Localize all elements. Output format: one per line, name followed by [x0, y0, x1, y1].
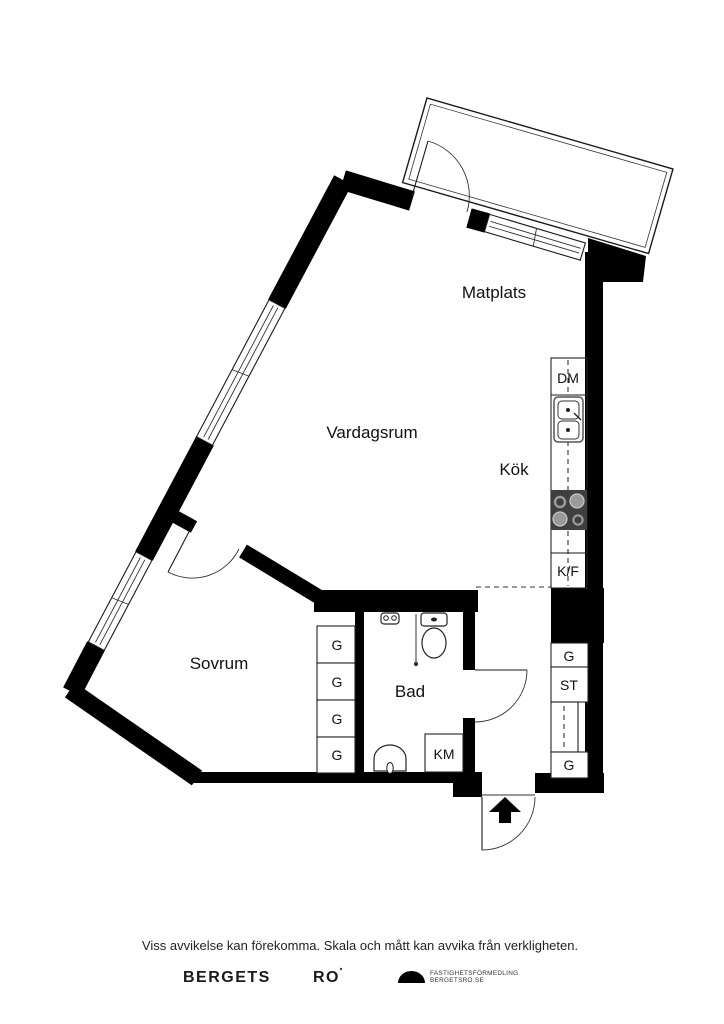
bedroom-door-jamb: [174, 516, 194, 527]
shower-line: [414, 614, 418, 666]
brand-word-ro: RO: [313, 969, 340, 986]
burner-bottom-left: [553, 512, 567, 526]
label-wardrobe-1: G: [332, 637, 343, 653]
kitchen-sink: [554, 397, 583, 442]
left-wall-mid-segment: [144, 441, 205, 556]
round-basin: [374, 745, 406, 774]
kitchen-counter: [476, 358, 587, 588]
burner-bottom-right: [573, 515, 582, 524]
floorplan-page: Matplats Vardagsrum Kök Sovrum Bad DM K/…: [0, 0, 724, 1024]
burner-top-left: [555, 497, 565, 507]
interior-walls: [174, 516, 604, 774]
halfcircle-logo-icon: [398, 971, 425, 983]
left-wall-top-segment: [277, 180, 343, 304]
floorplan-drawing: Matplats Vardagsrum Kök Sovrum Bad DM K/…: [0, 0, 724, 1024]
label-dishwasher: DM: [557, 370, 579, 386]
toilet: [421, 613, 447, 658]
label-sovrum: Sovrum: [190, 654, 249, 673]
label-kok: Kök: [499, 460, 529, 479]
left-window-upper: [197, 300, 285, 445]
label-matplats: Matplats: [462, 283, 526, 302]
burner-top-right: [570, 494, 584, 508]
label-hall-g-bottom: G: [564, 757, 575, 773]
entrance-arrow: [489, 797, 521, 823]
entrance-left-jamb: [453, 772, 482, 797]
bathroom-left-wall: [355, 612, 364, 773]
brand-word-bergets: BERGETS: [183, 969, 271, 986]
label-hall-g-top: G: [564, 648, 575, 664]
agency-line-2: BERGETSRO.SE: [430, 977, 484, 984]
label-fridge-freezer: K/F: [557, 563, 579, 579]
bathroom-door: [475, 670, 527, 722]
bathroom-washbasin-small: [381, 613, 399, 624]
disclaimer-text: Viss avvikelse kan förekomma. Skala och …: [142, 938, 578, 953]
top-wall-left-segment: [343, 180, 412, 201]
label-washing-machine: KM: [434, 746, 455, 762]
label-hall-st: ST: [560, 677, 578, 693]
hall-kitchen-wall-block: [551, 588, 604, 643]
bedroom-door: [168, 526, 239, 578]
top-wall-door-jamb: [469, 218, 487, 223]
left-window-lower: [88, 552, 152, 651]
label-wardrobe-2: G: [332, 674, 343, 690]
label-vardagsrum: Vardagsrum: [326, 423, 417, 442]
bathroom-right-wall-upper: [463, 612, 475, 670]
bathroom-top-wall: [314, 590, 478, 612]
bottom-left-diagonal-wall: [70, 690, 197, 778]
bedroom-partition-wall: [243, 551, 319, 597]
agency-line-1: FASTIGHETSFÖRMEDLING: [430, 969, 518, 977]
brand-trademark-dot: [340, 968, 342, 970]
stove: [551, 490, 587, 530]
label-wardrobe-4: G: [332, 747, 343, 763]
label-wardrobe-3: G: [332, 711, 343, 727]
footer: Viss avvikelse kan förekomma. Skala och …: [142, 938, 578, 986]
label-bad: Bad: [395, 682, 425, 701]
bathroom-right-wall-lower: [463, 718, 475, 774]
